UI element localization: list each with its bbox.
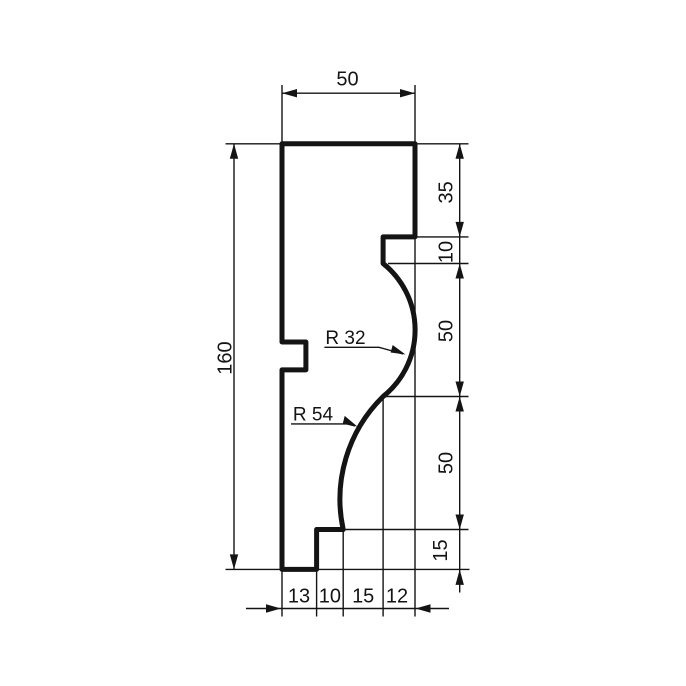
svg-text:50: 50 [336, 69, 358, 91]
svg-text:35: 35 [436, 181, 458, 203]
svg-text:50: 50 [436, 320, 458, 342]
svg-text:15: 15 [352, 586, 374, 608]
svg-text:50: 50 [436, 452, 458, 474]
svg-text:15: 15 [430, 539, 452, 561]
svg-text:12: 12 [386, 586, 408, 608]
svg-text:R 32: R 32 [325, 328, 365, 349]
svg-text:13: 13 [288, 586, 310, 608]
svg-text:160: 160 [215, 341, 237, 374]
svg-text:R 54: R 54 [293, 405, 334, 426]
svg-text:10: 10 [436, 241, 458, 263]
svg-text:10: 10 [319, 586, 341, 608]
